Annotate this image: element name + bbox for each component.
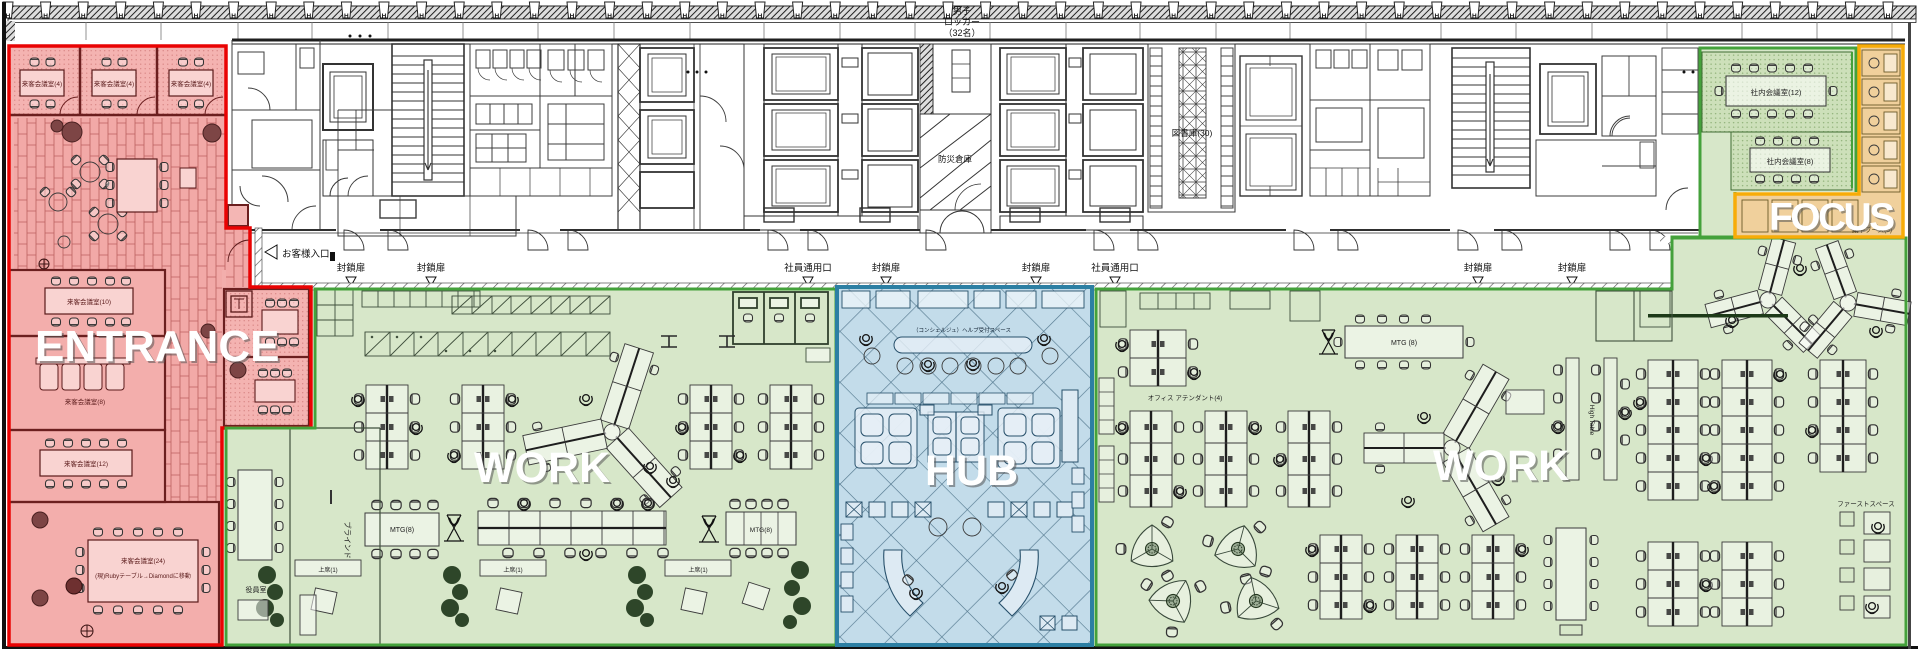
svg-text:H: H: [645, 13, 650, 20]
svg-text:上席(1): 上席(1): [688, 566, 707, 574]
svg-text:上席(1): 上席(1): [503, 566, 522, 574]
svg-text:H: H: [1472, 13, 1477, 20]
svg-text:H: H: [1585, 13, 1590, 20]
svg-text:H: H: [1810, 13, 1815, 20]
svg-text:（32名）: （32名）: [943, 27, 980, 38]
svg-text:ファーストスペース: ファーストスペース: [1837, 500, 1894, 508]
svg-text:ENTRANCE: ENTRANCE: [35, 322, 279, 371]
svg-text:MTG(8): MTG(8): [750, 527, 772, 534]
svg-text:H: H: [833, 13, 838, 20]
svg-text:H: H: [870, 13, 875, 20]
svg-text:オフィス アテンダント(4): オフィス アテンダント(4): [1148, 393, 1223, 402]
svg-text:H: H: [795, 13, 800, 20]
svg-text:H: H: [457, 13, 462, 20]
svg-text:お客様入口: お客様入口: [282, 248, 330, 260]
svg-text:H: H: [1848, 13, 1853, 20]
svg-text:WORK: WORK: [474, 444, 610, 492]
svg-text:H: H: [1773, 13, 1778, 20]
svg-text:封鎖扉: 封鎖扉: [337, 262, 366, 274]
svg-text:H: H: [1134, 13, 1139, 20]
svg-text:H: H: [1698, 13, 1703, 20]
svg-text:H: H: [494, 13, 499, 20]
svg-text:H: H: [1735, 13, 1740, 20]
svg-text:H: H: [1434, 13, 1439, 20]
svg-text:来客会議室(24): 来客会議室(24): [121, 556, 165, 565]
svg-text:H: H: [231, 13, 236, 20]
svg-text:H: H: [983, 13, 988, 20]
svg-text:H: H: [1021, 13, 1026, 20]
svg-text:H: H: [1058, 13, 1063, 20]
svg-text:WORK: WORK: [1433, 442, 1569, 490]
svg-text:H: H: [1510, 13, 1515, 20]
svg-text:（コンシェルジュ）ヘルプ受付スペース: （コンシェルジュ）ヘルプ受付スペース: [913, 326, 1011, 334]
svg-text:封鎖扉: 封鎖扉: [872, 262, 901, 274]
svg-text:H: H: [1322, 13, 1327, 20]
svg-text:ロッカー: ロッカー: [944, 17, 980, 27]
svg-text:MTG (8): MTG (8): [1391, 340, 1417, 347]
svg-text:封鎖扉: 封鎖扉: [417, 262, 446, 274]
svg-text:ブラインド: ブラインド: [343, 521, 353, 559]
svg-text:H: H: [1547, 13, 1552, 20]
svg-text:H: H: [570, 13, 575, 20]
svg-text:H: H: [43, 13, 48, 20]
svg-text:H: H: [1886, 13, 1891, 20]
svg-text:来客会議室(4): 来客会議室(4): [171, 79, 211, 88]
svg-text:来客会議室(12): 来客会議室(12): [64, 459, 108, 468]
svg-text:H: H: [1284, 13, 1289, 20]
svg-text:(現)Rubyテーブル→Diamondに移動: (現)Rubyテーブル→Diamondに移動: [95, 572, 191, 580]
svg-text:来客会議室(10): 来客会議室(10): [67, 297, 111, 306]
svg-text:H: H: [344, 13, 349, 20]
svg-text:MTG(8): MTG(8): [390, 527, 414, 534]
svg-text:H: H: [1209, 13, 1214, 20]
svg-text:社内会議室(12): 社内会議室(12): [1751, 87, 1802, 97]
svg-text:H: H: [194, 13, 199, 20]
svg-text:H: H: [720, 13, 725, 20]
svg-text:防災倉庫: 防災倉庫: [938, 154, 973, 164]
svg-text:来客会議室(4): 来客会議室(4): [94, 79, 134, 88]
svg-text:FOCUS: FOCUS: [1769, 196, 1894, 239]
svg-text:来客会議室(4): 来客会議室(4): [22, 79, 62, 88]
svg-text:封鎖扉: 封鎖扉: [1558, 262, 1587, 274]
svg-text:H: H: [1397, 13, 1402, 20]
svg-text:H: H: [1096, 13, 1101, 20]
svg-text:社員通用口: 社員通用口: [1091, 262, 1139, 274]
svg-text:H: H: [382, 13, 387, 20]
svg-text:封鎖扉: 封鎖扉: [1464, 262, 1493, 274]
svg-text:H: H: [758, 13, 763, 20]
svg-text:H: H: [419, 13, 424, 20]
svg-text:H: H: [118, 13, 123, 20]
svg-text:HUB: HUB: [925, 447, 1018, 495]
svg-text:男子: 男子: [953, 6, 971, 16]
svg-text:H: H: [1622, 13, 1627, 20]
svg-text:High Table: High Table: [1588, 405, 1595, 436]
svg-text:H: H: [269, 13, 274, 20]
svg-text:H: H: [682, 13, 687, 20]
svg-text:社内会議室(8): 社内会議室(8): [1767, 156, 1814, 166]
svg-text:H: H: [306, 13, 311, 20]
svg-text:H: H: [6, 13, 11, 20]
svg-text:H: H: [1246, 13, 1251, 20]
svg-text:役員室: 役員室: [246, 585, 267, 594]
svg-text:来客会議室(8): 来客会議室(8): [65, 397, 105, 406]
svg-text:社員通用口: 社員通用口: [784, 262, 832, 274]
svg-text:H: H: [1660, 13, 1665, 20]
svg-text:H: H: [1359, 13, 1364, 20]
svg-text:H: H: [81, 13, 86, 20]
svg-text:H: H: [908, 13, 913, 20]
svg-text:図書庫(30): 図書庫(30): [1172, 128, 1213, 138]
svg-text:上席(1): 上席(1): [318, 566, 337, 574]
svg-text:H: H: [607, 13, 612, 20]
svg-text:封鎖扉: 封鎖扉: [1022, 262, 1051, 274]
svg-text:H: H: [156, 13, 161, 20]
svg-text:H: H: [1171, 13, 1176, 20]
svg-text:H: H: [532, 13, 537, 20]
